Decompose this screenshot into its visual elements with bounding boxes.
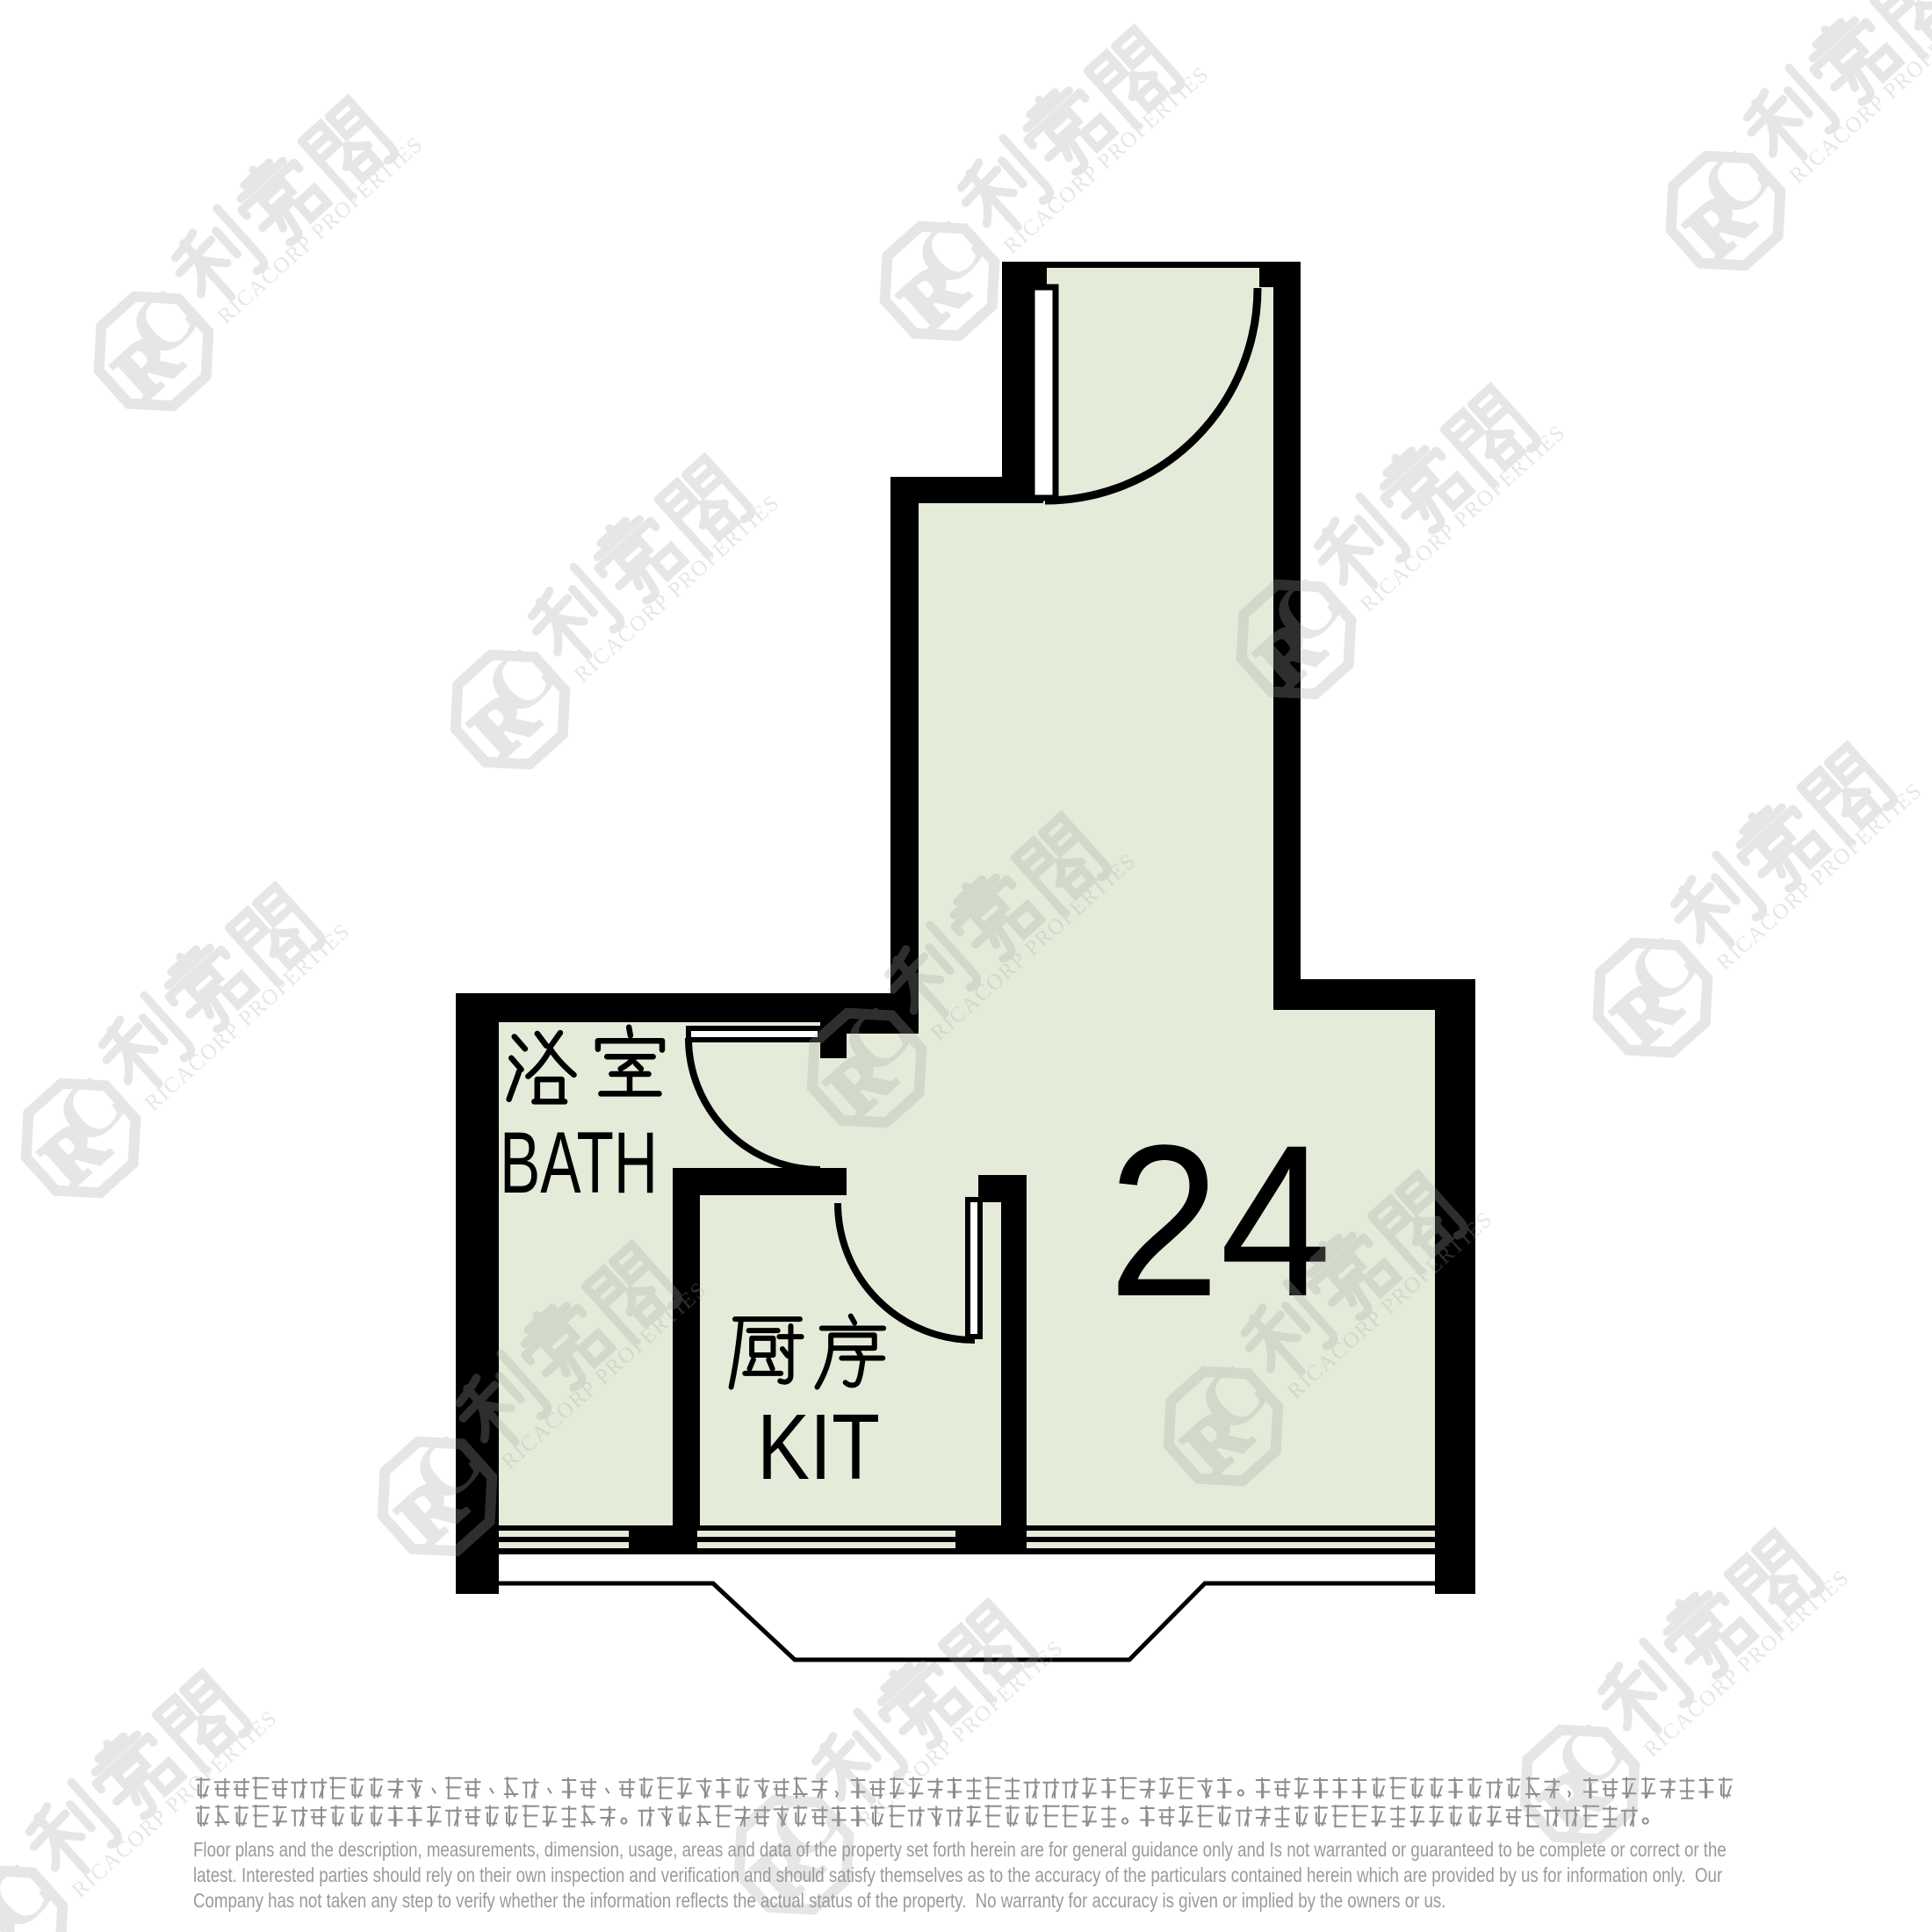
svg-text:KIT: KIT <box>757 1395 880 1499</box>
svg-text:24: 24 <box>1108 1100 1331 1342</box>
svg-text:BATH: BATH <box>500 1114 658 1211</box>
